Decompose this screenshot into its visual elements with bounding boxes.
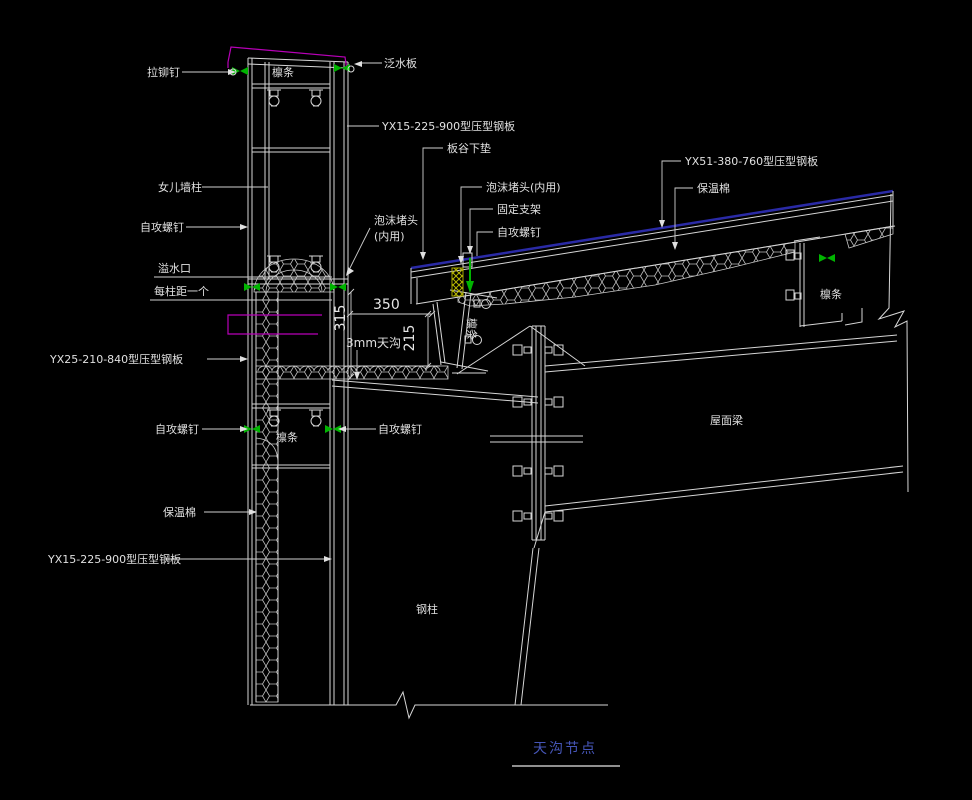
cad-viewport: 350 315 215 3mm天沟 拉铆钉 檩条 泛水板 YX15-2	[0, 0, 972, 800]
rivet-fastener-icon	[232, 67, 248, 75]
bolt-icon	[513, 345, 563, 355]
label-purlin-gutter: 檩条	[465, 318, 479, 340]
label-yx25-panel: YX25-210-840型压型钢板	[49, 352, 183, 366]
wall-insulation-strip	[254, 259, 334, 702]
dim-gutter-width: 350	[373, 297, 400, 313]
label-screw-mid-right: 自攻螺钉	[378, 422, 422, 436]
label-purlin-lower: 檩条	[276, 430, 298, 444]
foam-plug-block	[452, 268, 463, 296]
label-yx51-panel: YX51-380-760型压型钢板	[684, 154, 818, 168]
label-foam-plug-right: 泡沫堵头(内用)	[486, 180, 561, 194]
bolt-icon	[513, 511, 563, 521]
label-insulation-left: 保温棉	[163, 505, 196, 519]
leader-lines	[150, 61, 693, 562]
label-purlin-right: 檩条	[820, 287, 842, 301]
dim-gutter-depth-left: 315	[333, 305, 349, 332]
label-flashing: 泛水板	[384, 56, 417, 70]
gutter-arch-insulation	[254, 259, 334, 292]
steel-column	[515, 512, 545, 705]
label-yx15-panel-top: YX15-225-900型压型钢板	[381, 119, 515, 133]
cad-drawing: 350 315 215 3mm天沟 拉铆钉 檩条 泛水板 YX15-2	[0, 0, 972, 800]
label-yx15-panel-bottom: YX15-225-900型压型钢板	[47, 552, 181, 566]
parapet-top-purlin	[252, 84, 330, 152]
label-valley-pad: 板谷下垫	[447, 141, 491, 155]
dim-gutter-thickness: 3mm天沟	[346, 336, 401, 350]
label-roof-beam: 屋面梁	[710, 413, 743, 427]
rivet-fastener-icon	[334, 64, 350, 72]
bottom-break-line	[250, 692, 608, 718]
eave-purlin	[786, 237, 862, 327]
label-screw-upper-left: 自攻螺钉	[140, 220, 184, 234]
bolt-icon	[309, 410, 323, 426]
bolt-icon	[309, 90, 323, 106]
label-fixed-bracket: 固定支架	[497, 202, 541, 216]
label-parapet-column: 女儿墙柱	[158, 180, 202, 194]
gutter	[332, 302, 538, 403]
label-insulation-right: 保温棉	[697, 181, 730, 195]
roof-beam	[457, 326, 903, 540]
gutter-bottom-insulation	[256, 366, 448, 379]
label-rivet: 拉铆钉	[147, 65, 180, 79]
screw-fastener-icon	[819, 254, 835, 262]
label-overflow-port: 溢水口	[158, 261, 191, 275]
label-foam-plug-left-2: (内用)	[374, 229, 405, 243]
label-one-per-column: 每柱距一个	[154, 284, 209, 298]
label-screw-mid-left: 自攻螺钉	[155, 422, 199, 436]
label-purlin-top: 檩条	[272, 65, 294, 79]
label-foam-plug-left-1: 泡沫堵头	[374, 213, 418, 227]
screw-arrow-icon	[466, 281, 474, 293]
bolt-icon	[513, 466, 563, 476]
right-break-line	[879, 194, 908, 492]
dim-gutter-depth-right: 215	[402, 325, 418, 352]
label-screw-center: 自攻螺钉	[497, 225, 541, 239]
label-steel-column: 钢柱	[416, 602, 438, 616]
drawing-title: 天沟节点	[533, 741, 597, 757]
